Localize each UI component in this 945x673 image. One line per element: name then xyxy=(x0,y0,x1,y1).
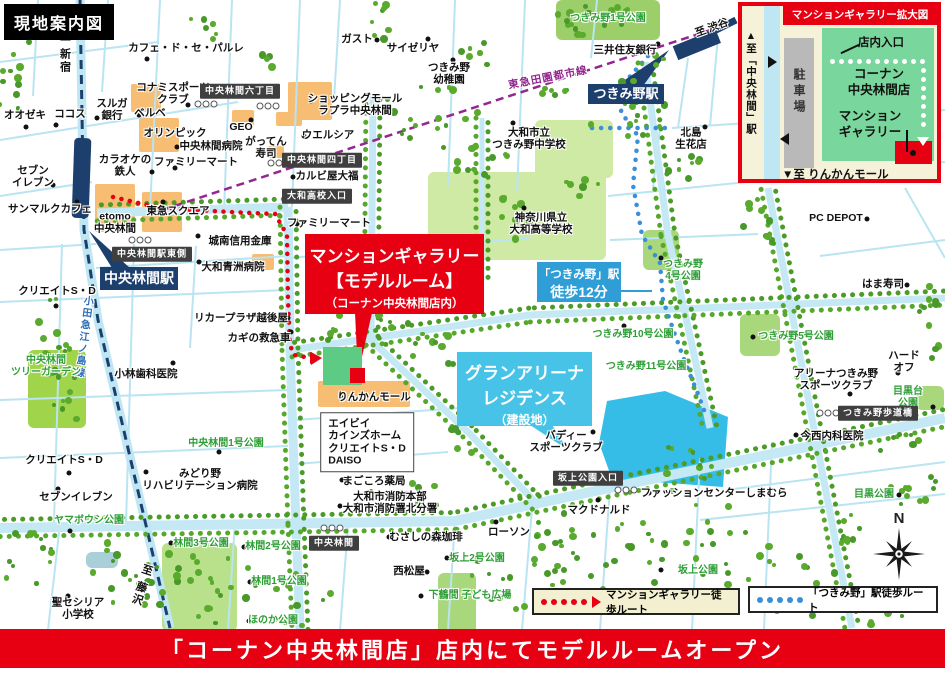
tree xyxy=(454,158,461,165)
walk-time-callout: 「つきみ野」駅 徒歩12分 xyxy=(537,262,621,302)
park-label: 坂上公園 xyxy=(678,565,718,577)
crossing-icon xyxy=(615,487,638,494)
legend-dot xyxy=(581,599,587,605)
tree xyxy=(104,539,112,547)
road-badge: つきみ野歩道橋 xyxy=(838,406,918,421)
legend-red-arrow-icon xyxy=(592,596,601,608)
tree xyxy=(111,600,115,604)
tree xyxy=(767,559,771,563)
tree xyxy=(111,559,115,563)
inset-route-dot xyxy=(921,122,926,127)
tree xyxy=(379,318,383,322)
tree xyxy=(603,562,609,568)
inset-store-label: コーナン 中央林間店 xyxy=(834,66,924,99)
poi-dot xyxy=(494,520,499,525)
tree xyxy=(928,474,934,480)
poi-dot xyxy=(522,206,527,211)
inset-route-dot xyxy=(839,59,844,64)
inset-arrow-out-icon xyxy=(780,133,789,145)
tree xyxy=(431,483,437,489)
legend-dot xyxy=(541,599,547,605)
tree xyxy=(764,233,771,240)
poi-dot xyxy=(67,471,72,476)
poi-dot xyxy=(54,123,59,128)
tree xyxy=(740,223,747,230)
road-badge: 坂上公園入口 xyxy=(553,471,623,486)
inset-gallery-label: マンション ギャラリー xyxy=(828,108,912,141)
tree xyxy=(683,540,690,547)
tree xyxy=(661,57,665,61)
map-label: 大和市消防本部 大和市消防署北分署 xyxy=(343,491,438,516)
poi-dot xyxy=(375,38,380,43)
map-label: 城南信用金庫 xyxy=(209,235,272,247)
tree xyxy=(53,329,61,337)
legend-dot xyxy=(551,599,557,605)
tree xyxy=(56,345,62,351)
inset-entrance-label: 店内入口 xyxy=(858,34,904,50)
tree xyxy=(385,27,392,34)
map-label: PC DEPOT xyxy=(809,212,863,224)
park-label: 坂上2号公園 xyxy=(449,553,505,565)
tree xyxy=(926,322,933,329)
tree xyxy=(441,145,446,150)
map-label: りんかんモール xyxy=(337,391,411,403)
tree xyxy=(48,298,52,302)
poi-dot xyxy=(659,568,664,573)
tree xyxy=(228,585,234,591)
poi-dot xyxy=(426,37,431,42)
tree xyxy=(474,109,481,116)
inset-route-dot xyxy=(893,59,898,64)
map-label: スルガ 銀行 xyxy=(96,98,127,123)
tree xyxy=(542,86,547,91)
tree xyxy=(591,532,596,537)
legend-dot xyxy=(767,597,773,603)
tree xyxy=(538,543,546,551)
inset-route-arrow-icon xyxy=(917,137,929,146)
park-label: つきみ野11号公園 xyxy=(606,361,687,373)
legend-blue-dots xyxy=(757,597,803,603)
tree xyxy=(54,297,58,301)
legend-dot xyxy=(757,597,763,603)
tree xyxy=(579,183,586,190)
inset-route-dot xyxy=(921,68,926,73)
tree xyxy=(242,594,249,601)
poi-dot xyxy=(596,498,601,503)
tree xyxy=(7,559,12,564)
map-label: サンマルクカフェ xyxy=(8,203,92,215)
map-label: セブンイレブン xyxy=(39,491,113,503)
tree xyxy=(571,551,575,555)
station-box-tsukimino: つきみ野駅 xyxy=(588,84,664,104)
legend-dot xyxy=(787,597,793,603)
map-label: 西松屋 xyxy=(393,565,425,577)
tree xyxy=(746,577,750,581)
map-label: 三井住友銀行 xyxy=(594,44,657,56)
poi-dot xyxy=(338,504,343,509)
map-label: サイゼリヤ xyxy=(387,42,440,54)
inset-map: マンションギャラリー拡大図 ▲至「中央林間」駅 駐車場 店内入口 コーナン 中央… xyxy=(738,2,941,183)
inset-gallery-dot xyxy=(910,150,916,156)
tree xyxy=(60,406,65,411)
poi-dot xyxy=(161,200,166,205)
tree xyxy=(327,590,334,597)
map-label: ハードオフ xyxy=(884,350,925,375)
tree xyxy=(725,503,732,510)
tree xyxy=(4,575,9,580)
tree xyxy=(561,510,567,516)
tree xyxy=(665,167,672,174)
park-label: 目黒公園 xyxy=(854,489,894,501)
tree xyxy=(407,135,413,141)
tree xyxy=(552,540,558,546)
tree xyxy=(550,583,554,587)
poi-dot xyxy=(751,335,756,340)
tree xyxy=(477,50,482,55)
gallery-callout-line3: （コーナン中央林間店内） xyxy=(305,295,484,311)
map-label: ファミリーマート xyxy=(154,156,238,168)
crossing-icon xyxy=(129,237,152,244)
tree xyxy=(11,52,15,56)
inset-route-dot xyxy=(921,77,926,82)
tree xyxy=(513,606,519,612)
map-label: オリンピック xyxy=(144,127,207,139)
park-label: ほのか公園 xyxy=(248,615,298,627)
tree xyxy=(640,62,644,66)
map-label: 聖セシリア 小学校 xyxy=(52,597,105,622)
inset-route-dot xyxy=(921,95,926,100)
tree xyxy=(410,353,416,359)
park-label: 中央林間 ツリーガーデン xyxy=(11,355,81,379)
tree xyxy=(15,81,22,88)
legend-blue-label: 「つきみ野」駅徒歩ルート xyxy=(808,585,929,615)
tree xyxy=(868,619,874,625)
map-label: カルビ屋大福 xyxy=(296,170,359,182)
inset-route-dot xyxy=(920,59,925,64)
gallery-callout-line2: 【モデルルーム】 xyxy=(305,267,484,292)
tree xyxy=(745,200,753,208)
road-badge: 中央林間 xyxy=(309,536,359,551)
poi-dot xyxy=(931,405,936,410)
park-label: つきみ野1号公園 xyxy=(570,13,646,25)
tree xyxy=(503,152,508,157)
tree xyxy=(512,235,520,243)
park-label: 林間3号公園 xyxy=(173,538,229,550)
legend-dot xyxy=(571,599,577,605)
tree xyxy=(929,355,935,361)
road-badge: 中央林間六丁目 xyxy=(200,84,280,99)
park-label: ヤマボウシ公園 xyxy=(54,515,124,527)
map-label: etomo 中央林間 xyxy=(94,211,136,236)
tree xyxy=(663,470,671,478)
tree xyxy=(677,167,682,172)
tree xyxy=(156,601,163,608)
tree xyxy=(765,543,772,550)
map-label: バディー スポーツクラブ xyxy=(529,430,602,455)
map-label: むさしの森珈琲 xyxy=(389,531,463,543)
map-label: 東急スクエア xyxy=(147,205,210,217)
tree xyxy=(381,6,386,11)
tree xyxy=(640,132,646,138)
crossing-icon xyxy=(257,103,280,110)
tree xyxy=(0,79,5,84)
inset-to-mall-label: ▼至 りんかんモール xyxy=(782,166,889,182)
tree xyxy=(402,128,406,132)
map-label: 今西内科医院 xyxy=(801,430,864,442)
tree xyxy=(65,397,72,404)
tree xyxy=(933,479,938,484)
tree xyxy=(165,550,173,558)
tree xyxy=(611,558,617,564)
tree xyxy=(569,533,576,540)
map-label: アリーナつきみ野 スポーツクラブ xyxy=(794,368,878,393)
tree xyxy=(499,195,507,203)
map-label: ウエルシア xyxy=(302,129,355,141)
poi-dot xyxy=(196,234,201,239)
site-callout-line1: グランアリーナ xyxy=(457,359,592,384)
tree xyxy=(581,176,589,184)
tree xyxy=(698,463,702,467)
poi-dot xyxy=(54,304,59,309)
tree xyxy=(489,154,496,161)
tree xyxy=(693,555,699,561)
poi-dot xyxy=(419,594,424,599)
tree xyxy=(615,526,621,532)
tree xyxy=(435,126,440,131)
map-label: がってん 寿司 xyxy=(245,136,286,161)
tree xyxy=(481,40,487,46)
poi-dot xyxy=(171,361,176,366)
inset-route-dot xyxy=(921,113,926,118)
tree xyxy=(0,102,2,107)
poi-dot xyxy=(145,57,150,62)
tree xyxy=(772,563,776,567)
page-title: 現地案内図 xyxy=(4,4,114,40)
inset-route-dot xyxy=(830,59,835,64)
tree xyxy=(113,551,120,558)
site-map: オオゼキココス至 新宿カフェ・ド・セ・パルレスルガ 銀行コナミスポーツ クラブベ… xyxy=(0,0,945,673)
tree xyxy=(325,337,331,343)
crossing-icon xyxy=(817,410,840,417)
map-label: リカープラザ越後屋 xyxy=(194,312,288,324)
tree xyxy=(561,567,567,573)
tree xyxy=(897,432,902,437)
map-label: オオゼキ xyxy=(4,109,46,121)
map-label: ファミリーマート xyxy=(287,217,371,229)
map-label: まごころ薬局 xyxy=(343,475,406,487)
site-callout-line3: （建設地） xyxy=(457,411,592,428)
legend-gallery-route: マンションギャラリー徒歩ルート xyxy=(532,588,740,615)
tree xyxy=(173,572,181,580)
map-label: セブン イレブン xyxy=(12,165,54,190)
inset-route-dot xyxy=(857,59,862,64)
park-label: つきみ野10号公園 xyxy=(592,329,673,341)
map-label: カフェ・ド・セ・パルレ xyxy=(128,42,244,54)
tree xyxy=(710,541,716,547)
tree xyxy=(627,543,635,551)
tree xyxy=(796,553,803,560)
map-label: ファッションセンターしまむら xyxy=(641,487,788,499)
tree xyxy=(420,332,425,337)
gallery-callout: マンションギャラリー 【モデルルーム】 （コーナン中央林間店内） xyxy=(305,234,484,314)
tree xyxy=(400,132,404,136)
tree xyxy=(635,113,639,117)
site-callout: グランアリーナ レジデンス （建設地） xyxy=(457,352,592,426)
poi-dot xyxy=(622,324,627,329)
map-label: 北島 生花店 xyxy=(675,127,707,152)
map-label: つきみ野 幼稚園 xyxy=(428,62,470,87)
tree xyxy=(922,496,930,504)
tree xyxy=(35,318,43,326)
tree xyxy=(435,115,442,122)
tree xyxy=(13,91,20,98)
crossing-icon xyxy=(321,525,344,532)
inset-route-dot xyxy=(884,59,889,64)
map-label: クリエイトS・D xyxy=(25,454,103,466)
park-label: つきみ野5号公園 xyxy=(758,331,834,343)
tree xyxy=(657,124,662,129)
tree xyxy=(507,574,514,581)
tree xyxy=(926,283,932,289)
inset-gallery-line xyxy=(906,130,908,152)
tree xyxy=(435,87,441,93)
station-box-chuo-rinkan: 中央林間駅 xyxy=(100,267,178,290)
road-badge: 中央林間四丁目 xyxy=(282,153,362,168)
tree xyxy=(213,621,217,625)
map-label: はま寿司 xyxy=(862,278,904,290)
poi-dot xyxy=(217,450,222,455)
tree xyxy=(691,450,695,454)
tree xyxy=(438,343,446,351)
park-label: 林間2号公園 xyxy=(245,541,301,553)
tree xyxy=(484,62,489,67)
legend-dot xyxy=(777,597,783,603)
tree xyxy=(909,441,916,448)
inset-to-station-label: ▲至「中央林間」駅 xyxy=(744,30,759,135)
tree xyxy=(857,526,862,531)
legend-station-route: 「つきみ野」駅徒歩ルート xyxy=(748,586,938,613)
store-list-box: エイビイ カインズホーム クリエイトS・D DAISO xyxy=(320,412,414,472)
inset-road xyxy=(764,6,780,179)
tree xyxy=(210,21,215,26)
inset-route-dot xyxy=(902,59,907,64)
park-label: 林間1号公園 xyxy=(251,576,307,588)
tree xyxy=(878,448,883,453)
tree xyxy=(647,560,652,565)
tree xyxy=(831,569,839,577)
map-label: カギの救急車 xyxy=(228,332,291,344)
tree xyxy=(471,167,476,172)
tree xyxy=(293,602,300,609)
map-label: ベルベ xyxy=(134,107,166,119)
site-callout-line2: レジデンス xyxy=(457,384,592,409)
tree xyxy=(573,26,579,32)
tree xyxy=(574,31,581,38)
tree xyxy=(841,518,847,524)
poi-dot xyxy=(68,529,73,534)
inset-arrow-in-icon xyxy=(768,56,777,68)
map-label: カラオケの 鉄人 xyxy=(99,154,152,179)
tree xyxy=(195,569,202,576)
tree xyxy=(743,530,748,535)
tree xyxy=(444,123,448,127)
poi-dot xyxy=(897,493,902,498)
tree xyxy=(40,545,45,550)
tree xyxy=(552,92,558,98)
tree xyxy=(34,581,38,585)
inset-route-dot xyxy=(911,59,916,64)
inset-route-dot xyxy=(848,59,853,64)
tree xyxy=(646,532,650,536)
map-label: ココス xyxy=(54,108,86,120)
tree xyxy=(921,305,927,311)
tree xyxy=(685,175,692,182)
tree xyxy=(108,585,115,592)
poi-dot xyxy=(24,125,29,130)
poi-dot xyxy=(865,217,870,222)
map-label: ショッピングモール ラプラ中央林間 xyxy=(308,93,403,118)
park-label: 下鶴間 子ども広場 xyxy=(429,590,512,602)
map-label: コナミスポーツ クラブ xyxy=(136,82,209,107)
inset-parking-label: 駐車場 xyxy=(791,68,808,116)
legend-dot xyxy=(561,599,567,605)
tree xyxy=(659,557,665,563)
inset-route-dot xyxy=(921,104,926,109)
tree xyxy=(758,207,765,214)
tree xyxy=(468,46,472,50)
park-label: 中央林間1号公園 xyxy=(188,438,264,450)
tree xyxy=(555,11,562,18)
tree xyxy=(204,605,211,612)
map-label: みどり野 リハビリテーション病院 xyxy=(142,468,257,493)
map-label: GEO xyxy=(229,121,252,133)
road-badge: 中央林間駅東側 xyxy=(112,247,192,262)
map-label: 小林歯科医院 xyxy=(115,368,178,380)
map-label: 大和市立 つきみ野中学校 xyxy=(492,127,566,152)
tree xyxy=(909,433,913,437)
inset-route-dot xyxy=(875,59,880,64)
tree xyxy=(405,320,412,327)
compass-rose-icon xyxy=(872,527,926,581)
legend-red-label: マンションギャラリー徒歩ルート xyxy=(606,587,731,617)
inset-route-dot xyxy=(921,86,926,91)
tree xyxy=(694,503,698,507)
compass-north-label: N xyxy=(872,510,926,527)
inset-route-dot xyxy=(866,59,871,64)
park-label: つきみ野 4号公園 xyxy=(663,259,703,283)
legend-dot xyxy=(797,597,803,603)
map-label: マクドナルド xyxy=(568,504,631,516)
tree xyxy=(466,53,473,60)
tree xyxy=(661,540,669,548)
inset-title: マンションギャラリー拡大図 xyxy=(783,6,937,25)
tree xyxy=(121,569,129,577)
tree xyxy=(16,63,24,71)
road-badge: 大和高校入口 xyxy=(282,189,352,204)
map-label: 中央林間病院 xyxy=(180,140,243,152)
legend-red-dots xyxy=(541,599,587,605)
bottom-banner: 「コーナン中央林間店」店内にてモデルルームオープン xyxy=(0,629,945,668)
poi-dot xyxy=(794,433,799,438)
map-label: ガスト xyxy=(341,33,373,45)
tree xyxy=(433,340,438,345)
tree xyxy=(196,614,201,619)
walk-callout-line2: 徒歩12分 xyxy=(537,282,621,302)
poi-dot xyxy=(511,121,516,126)
tree xyxy=(686,528,694,536)
tree xyxy=(567,181,574,188)
walk-callout-line1: 「つきみ野」駅 xyxy=(537,266,621,282)
